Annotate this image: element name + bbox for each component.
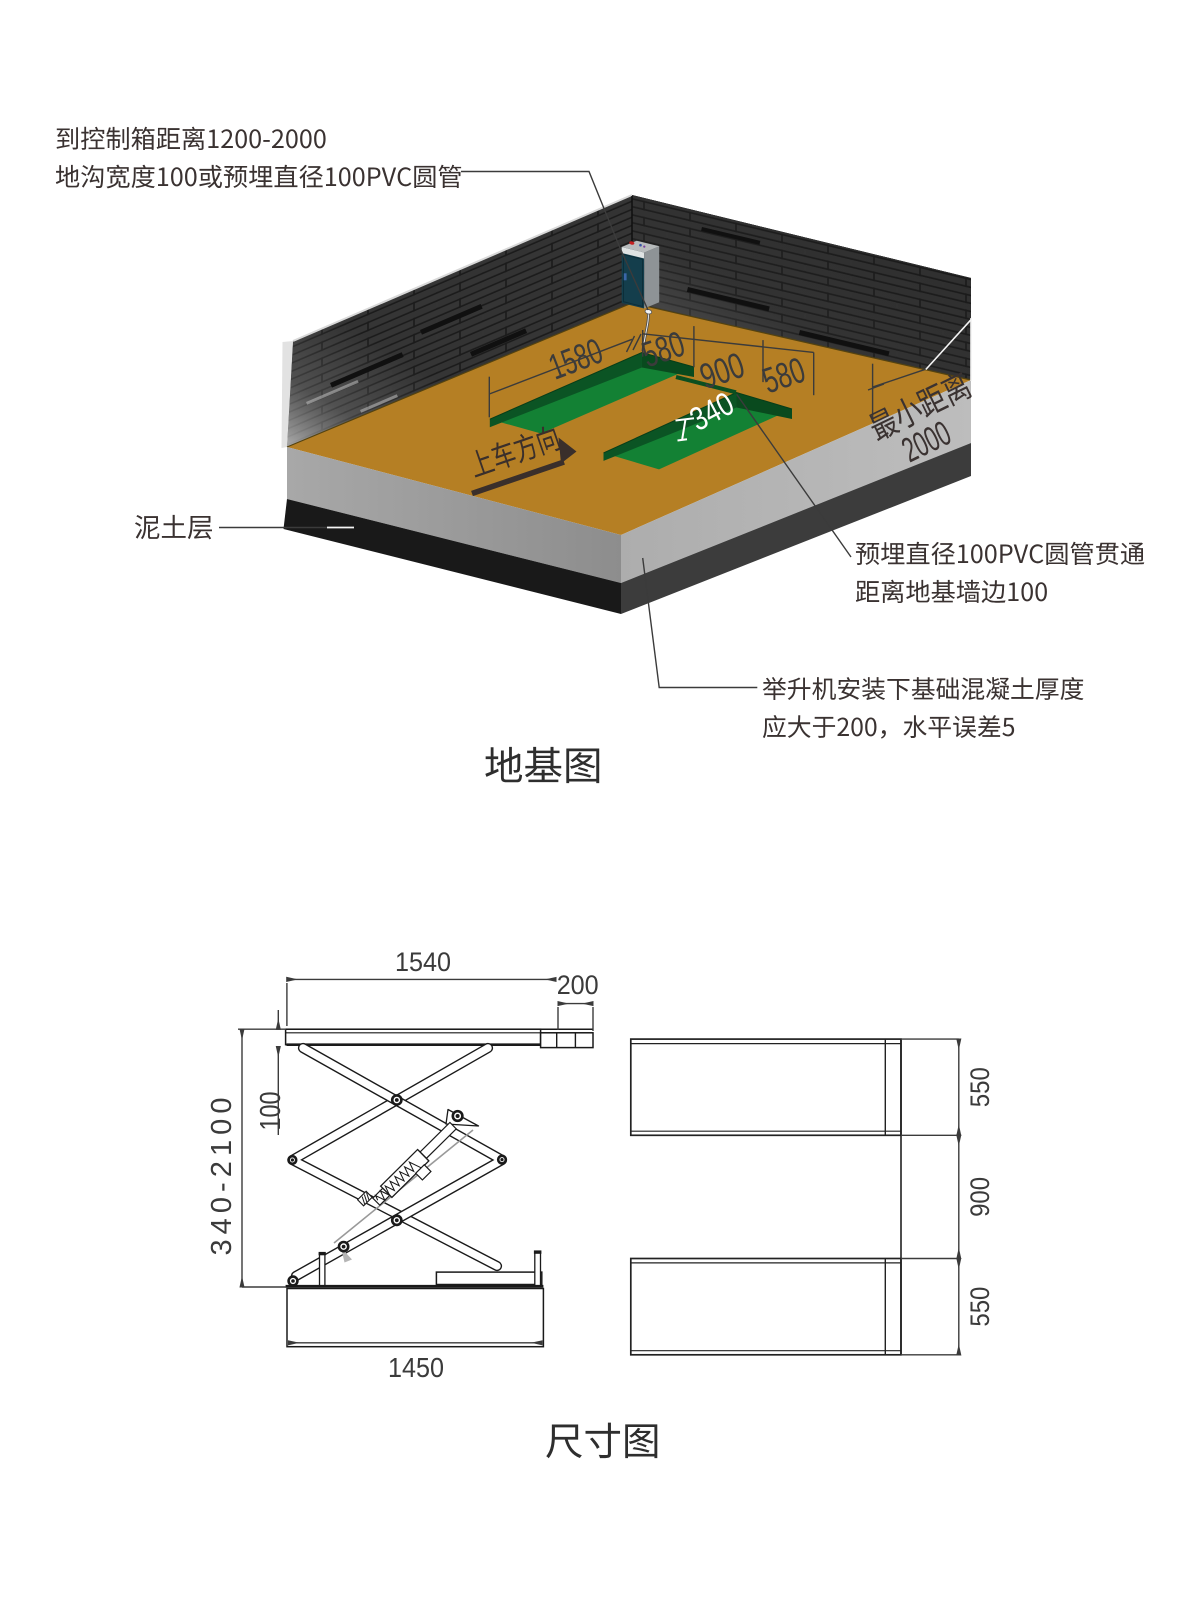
svg-text:340-2100: 340-2100: [206, 1098, 238, 1256]
svg-text:1540: 1540: [395, 947, 451, 977]
svg-text:550: 550: [965, 1287, 995, 1327]
svg-text:900: 900: [965, 1177, 995, 1217]
svg-text:100: 100: [255, 1092, 287, 1131]
svg-text:550: 550: [965, 1067, 995, 1107]
svg-text:1450: 1450: [388, 1352, 444, 1383]
svg-text:200: 200: [557, 970, 599, 1000]
